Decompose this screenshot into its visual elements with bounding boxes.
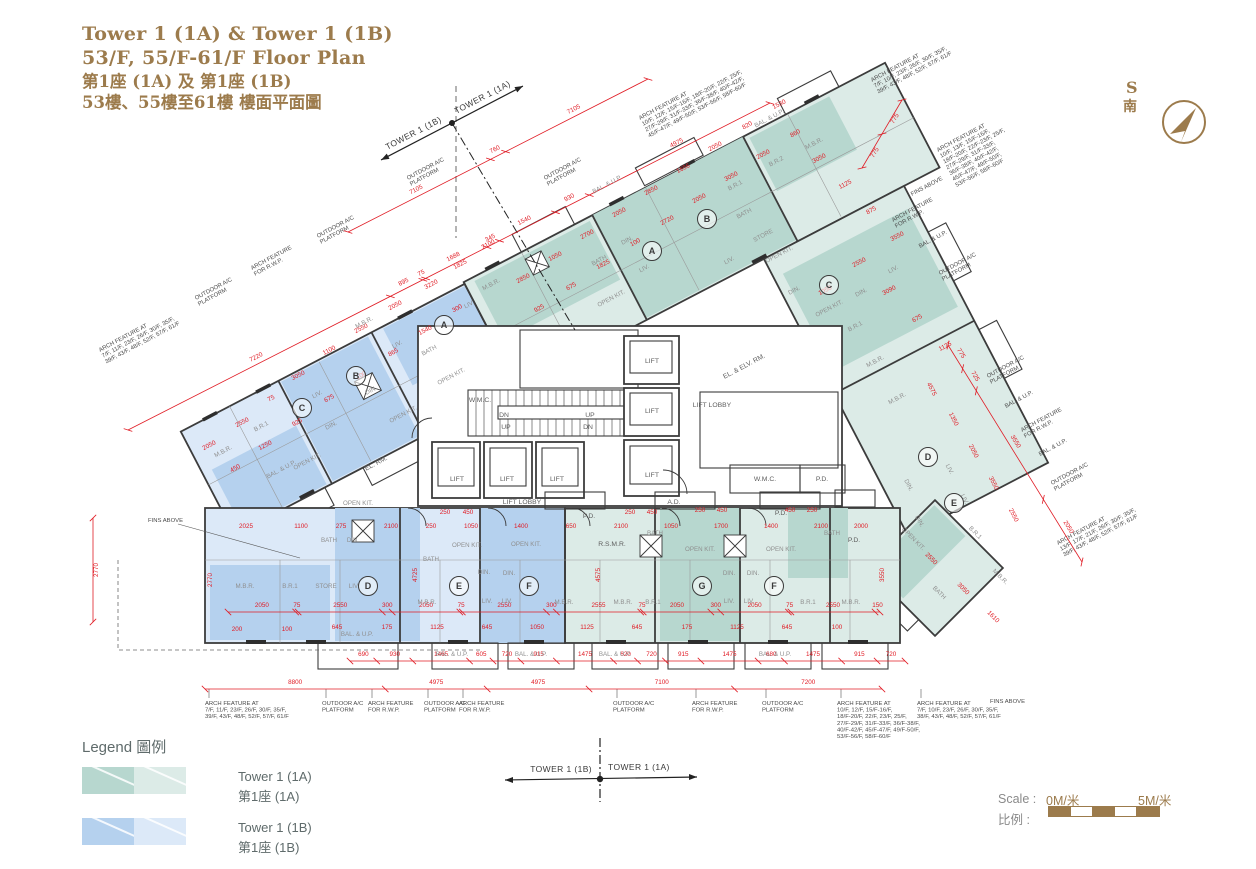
swatch-1b-light bbox=[134, 818, 186, 845]
unit-letter-F: F bbox=[526, 581, 532, 591]
unit-letter-D: D bbox=[925, 452, 932, 462]
dimension-label: 720 bbox=[886, 651, 897, 658]
swatch-1a-dark bbox=[82, 767, 134, 794]
dimension-label: 450 bbox=[717, 507, 728, 514]
room-label: BAL. & U.P. bbox=[759, 651, 791, 658]
dimension-label: 605 bbox=[476, 651, 487, 658]
room-label: BAL. & U.P. bbox=[515, 651, 547, 658]
annotation-label: ARCH FEATUREFOR R.W.P. bbox=[692, 701, 737, 714]
dimension-label: 2550 bbox=[1007, 507, 1020, 523]
scale-bar bbox=[1048, 806, 1160, 817]
dimension-label: 75 bbox=[458, 602, 466, 609]
dimension-label: 100 bbox=[832, 624, 843, 631]
core-label: P.D. bbox=[848, 537, 860, 544]
dimension-label: 915 bbox=[854, 651, 865, 658]
annotation-label: ARCH FEATURE AT7/F, 11/F, 23/F, 26/F, 30… bbox=[98, 309, 181, 365]
dim-tick bbox=[585, 194, 594, 197]
dimension-label: 915 bbox=[678, 651, 689, 658]
core-label: LIFT bbox=[645, 358, 659, 365]
dimension-label: 1400 bbox=[514, 523, 529, 530]
annotation-label: FINS ABOVE bbox=[148, 518, 183, 524]
room-label: BATH bbox=[647, 530, 663, 537]
dimension-label: 250 bbox=[426, 523, 437, 530]
annotation-label: OUTDOOR A/CPLATFORM bbox=[194, 277, 237, 308]
unit-letter-B: B bbox=[704, 214, 711, 224]
annotation-label: ARCH FEATUREFOR R.W.P. bbox=[368, 701, 413, 714]
room-label: STORE bbox=[315, 583, 336, 590]
dimension-label: 1125 bbox=[430, 624, 444, 631]
dimension-label: 650 bbox=[566, 523, 577, 530]
floor-plan-svg: TOWER 1 (1B) TOWER 1 (1A) TOWER 1 (1B) T… bbox=[0, 0, 1256, 840]
room-label: OPEN KIT. bbox=[685, 546, 715, 553]
room-label: BATH bbox=[423, 556, 439, 563]
core-label: DN bbox=[583, 424, 593, 431]
room-label: LIV. bbox=[349, 583, 360, 590]
lift-bank-lower bbox=[432, 442, 584, 498]
dim-tick bbox=[501, 150, 510, 153]
tower-marker-1a-bottom: TOWER 1 (1A) bbox=[608, 762, 670, 772]
dimension-label: 100 bbox=[282, 626, 293, 633]
dimension-label: 75 bbox=[293, 602, 301, 609]
scale-label-en: Scale : bbox=[998, 792, 1036, 806]
core-label: LIFT bbox=[550, 476, 564, 483]
core-label: LIFT bbox=[645, 472, 659, 479]
dimension-label: 690 bbox=[358, 651, 369, 658]
dimension-label: 1050 bbox=[664, 523, 679, 530]
room-label: M.B.R. bbox=[614, 599, 633, 606]
dimension-label: 200 bbox=[232, 626, 243, 633]
unit-letter-E: E bbox=[456, 581, 462, 591]
dimension-label: 1400 bbox=[764, 523, 779, 530]
dim-tick bbox=[1042, 495, 1044, 504]
core-label: P.D. bbox=[775, 510, 787, 517]
unit-letter-G: G bbox=[698, 581, 705, 591]
unit-letter-F: F bbox=[771, 581, 777, 591]
annotation-label: OUTDOOR A/CPLATFORM bbox=[322, 701, 364, 714]
dimension-label: 2025 bbox=[239, 523, 254, 530]
dimension-label: 250 bbox=[695, 507, 706, 514]
dimension-label: 250 bbox=[440, 509, 451, 516]
room-label: BAL. & U.P. bbox=[599, 651, 631, 658]
dimension-label: 2050 bbox=[387, 299, 403, 312]
room-label: M.B.R. bbox=[418, 599, 437, 606]
core-label: LIFT bbox=[500, 476, 514, 483]
dimension-label: 760 bbox=[489, 144, 502, 155]
unit-letter-B: B bbox=[353, 371, 360, 381]
dimension-label: 4975 bbox=[429, 679, 444, 686]
annotation-label: ARCH FEATURE AT10/F, 12/F, 15/F-16/F,18/… bbox=[837, 701, 920, 740]
core-label: A.D. bbox=[667, 499, 680, 506]
dimension-label: 1610 bbox=[986, 610, 1001, 625]
room-label: OPEN KIT. bbox=[766, 546, 796, 553]
core-label: P.D. bbox=[816, 476, 828, 483]
dimension-label: 1050 bbox=[464, 523, 479, 530]
annotation-label: ARCH FEATUREFOR R.W.P. bbox=[459, 701, 504, 714]
dimension-label: 1050 bbox=[530, 624, 545, 631]
dimension-label: 895 bbox=[397, 277, 410, 288]
legend-1b-zh: 第1座 (1B) bbox=[238, 838, 312, 858]
scale-indicator: Scale : 比例 : bbox=[998, 792, 1036, 828]
legend-swatch-1b bbox=[82, 818, 186, 845]
room-label: BATH bbox=[321, 537, 337, 544]
core-label: W.M.C. bbox=[754, 476, 776, 483]
dimension-label: 1475 bbox=[578, 651, 593, 658]
room-label: M.B.R. bbox=[555, 599, 574, 606]
annotation-label: OUTDOOR A/CPLATFORM bbox=[316, 215, 359, 246]
dimension-label: 300 bbox=[382, 602, 393, 609]
room-label: DIN. bbox=[747, 570, 760, 577]
dimension-label: 2770 bbox=[207, 573, 214, 588]
dimension-label: 930 bbox=[390, 651, 401, 658]
dimension-label: 1125 bbox=[730, 624, 744, 631]
core bbox=[412, 326, 845, 506]
room-label: DIN. bbox=[478, 569, 491, 576]
dimension-label: 175 bbox=[382, 624, 393, 631]
annotation-label: ARCH FEATURE AT7/F, 10/F, 23/F, 26/F, 30… bbox=[917, 701, 1001, 720]
core-label: LIFT bbox=[450, 476, 464, 483]
core-label: P.D. bbox=[583, 513, 595, 520]
room-label: M.B.R. bbox=[842, 599, 861, 606]
dimension-label: 4575 bbox=[595, 568, 602, 583]
legend-1b-en: Tower 1 (1B) bbox=[238, 818, 312, 838]
dimension-label: 7200 bbox=[801, 679, 816, 686]
dimension-label: 645 bbox=[782, 624, 793, 631]
annotation-label: OUTDOOR A/CPLATFORM bbox=[762, 701, 804, 714]
core-label: DN bbox=[499, 412, 509, 419]
dimension-label: 2550 bbox=[826, 602, 841, 609]
room-label: OPEN KIT. bbox=[511, 541, 541, 548]
annotation-label: OUTDOOR A/CPLATFORM bbox=[543, 157, 586, 188]
dimension-label: 7100 bbox=[655, 679, 670, 686]
scale-label-zh: 比例 : bbox=[998, 809, 1036, 828]
dimension-label: 1125 bbox=[580, 624, 594, 631]
dim-tick bbox=[386, 295, 395, 298]
swatch-1b-dark bbox=[82, 818, 134, 845]
unit-letter-A: A bbox=[441, 320, 448, 330]
dimension-label: 3550 bbox=[879, 568, 886, 583]
room-label: LIV. bbox=[724, 598, 735, 605]
core-label: UP bbox=[501, 424, 511, 431]
dimension-label: 2050 bbox=[255, 602, 270, 609]
legend-swatch-1a bbox=[82, 767, 186, 794]
dimension-label: 2550 bbox=[333, 602, 348, 609]
legend-1a-zh: 第1座 (1A) bbox=[238, 787, 312, 807]
tower-boundary-bottom: TOWER 1 (1B) TOWER 1 (1A) bbox=[505, 738, 697, 802]
tower-marker-1b-top: TOWER 1 (1B) bbox=[384, 114, 443, 151]
dimension-label: 250 bbox=[625, 509, 636, 516]
dimension-label: 450 bbox=[463, 509, 474, 516]
dimension-label: 4975 bbox=[531, 679, 546, 686]
dimension-label: 300 bbox=[711, 602, 722, 609]
annotation-label: FINS ABOVE bbox=[990, 699, 1025, 705]
dimension-label: 645 bbox=[632, 624, 643, 631]
room-label: BAL. & U.P. bbox=[436, 651, 468, 658]
dimension-label: 2770 bbox=[93, 563, 100, 578]
room-label: DIN. bbox=[347, 537, 360, 544]
dimension-label: 930 bbox=[563, 192, 576, 203]
annotation-label: ARCH FEATURE AT10/F, 13/F, 15/F-16/F,18/… bbox=[936, 116, 1019, 189]
core-label: W.M.C. bbox=[469, 397, 491, 404]
core-label: LIFT bbox=[645, 408, 659, 415]
room-label: BAL. & U.P. bbox=[591, 174, 623, 195]
annotation-label: OUTDOOR A/CPLATFORM bbox=[406, 157, 449, 188]
dimension-label: 645 bbox=[482, 624, 493, 631]
dimension-label: 1700 bbox=[714, 523, 729, 530]
dimension-label: 2100 bbox=[384, 523, 399, 530]
swatch-1a-light bbox=[134, 767, 186, 794]
room-label: M.B.R. bbox=[236, 583, 255, 590]
dimension-label: 720 bbox=[502, 651, 513, 658]
room-label: BATH bbox=[824, 530, 840, 537]
unit-letter-E: E bbox=[951, 498, 957, 508]
room-label: DIN. bbox=[503, 570, 516, 577]
unit-letter-C: C bbox=[299, 403, 306, 413]
dimension-label: 3220 bbox=[423, 278, 439, 291]
core-label: UP bbox=[585, 412, 595, 419]
legend-item-1b: Tower 1 (1B) 第1座 (1B) bbox=[82, 818, 312, 857]
dim-tick bbox=[486, 158, 495, 161]
dimension-label: 720 bbox=[646, 651, 657, 658]
dimension-label: 1475 bbox=[806, 651, 821, 658]
legend-1a-en: Tower 1 (1A) bbox=[238, 767, 312, 787]
legend: Legend 圖例 Tower 1 (1A) 第1座 (1A) Tower 1 … bbox=[82, 736, 312, 869]
room-label: B.R.1 bbox=[800, 599, 816, 606]
tower-marker-1a-top: TOWER 1 (1A) bbox=[453, 78, 512, 115]
dim-tick bbox=[124, 429, 133, 432]
dimension-label: 8800 bbox=[288, 679, 303, 686]
dimension-label: 75 bbox=[417, 268, 427, 278]
dim-tick bbox=[644, 78, 653, 81]
legend-heading: Legend 圖例 bbox=[82, 736, 312, 757]
dimension-label: 2050 bbox=[670, 602, 685, 609]
room-label: OPEN KIT. bbox=[343, 500, 373, 507]
annotation-label: ARCH FEATURE AT7/F, 11/F, 23/F, 26/F, 30… bbox=[205, 701, 289, 720]
dimension-label: 4725 bbox=[412, 568, 419, 583]
dimension-label: 1475 bbox=[723, 651, 738, 658]
annotation-label: BAL. & U.P. bbox=[1038, 438, 1068, 458]
dim-tick bbox=[495, 239, 504, 242]
dim-tick bbox=[1081, 558, 1083, 567]
dimension-label: 2100 bbox=[814, 523, 829, 530]
unit-letter-C: C bbox=[826, 280, 833, 290]
annotation-label: OUTDOOR A/CPLATFORM bbox=[613, 701, 655, 714]
core-label: LIFT LOBBY bbox=[503, 499, 542, 506]
annotation-label: OUTDOOR A/CPLATFORM bbox=[1050, 462, 1093, 493]
tower-marker-1b-bottom: TOWER 1 (1B) bbox=[530, 764, 592, 774]
dimension-label: 275 bbox=[336, 523, 347, 530]
annotation-label: ARCH FEATURE AT10/F, 12/F, 15/F-16/F, 18… bbox=[638, 64, 750, 140]
unit-letter-D: D bbox=[365, 581, 372, 591]
room-label: LIV. bbox=[482, 598, 493, 605]
dimension-label: 150 bbox=[872, 602, 883, 609]
legend-item-1a: Tower 1 (1A) 第1座 (1A) bbox=[82, 767, 312, 806]
room-label: OPEN KIT. bbox=[452, 542, 482, 549]
page: Tower 1 (1A) & Tower 1 (1B) 53/F, 55/F-6… bbox=[0, 0, 1256, 840]
dimension-label: 2555 bbox=[592, 602, 607, 609]
annotation-label: ARCH FEATUREFOR R.W.P. bbox=[250, 245, 296, 277]
room-label: LIV. bbox=[744, 598, 755, 605]
dimension-label: 820 bbox=[741, 120, 754, 131]
room-label: LIV. bbox=[502, 598, 513, 605]
core-label: R.S.M.R. bbox=[598, 541, 626, 548]
dimension-label: 1100 bbox=[294, 523, 308, 530]
room-label: B.R.1 bbox=[282, 583, 298, 590]
core-label: LIFT LOBBY bbox=[693, 402, 732, 409]
unit-letter-A: A bbox=[649, 246, 656, 256]
dimension-label: 2000 bbox=[854, 523, 869, 530]
dimension-label: 645 bbox=[332, 624, 343, 631]
dimension-label: 175 bbox=[682, 624, 693, 631]
dimension-label: 250 bbox=[807, 507, 818, 514]
dimension-label: 75 bbox=[786, 602, 794, 609]
room-label: DIN. bbox=[723, 570, 736, 577]
dimension-label: 450 bbox=[647, 509, 658, 516]
dimension-label: 2100 bbox=[614, 523, 629, 530]
room-label: BAL. & U.P. bbox=[341, 631, 373, 638]
room-label: B.R.1 bbox=[645, 599, 661, 606]
